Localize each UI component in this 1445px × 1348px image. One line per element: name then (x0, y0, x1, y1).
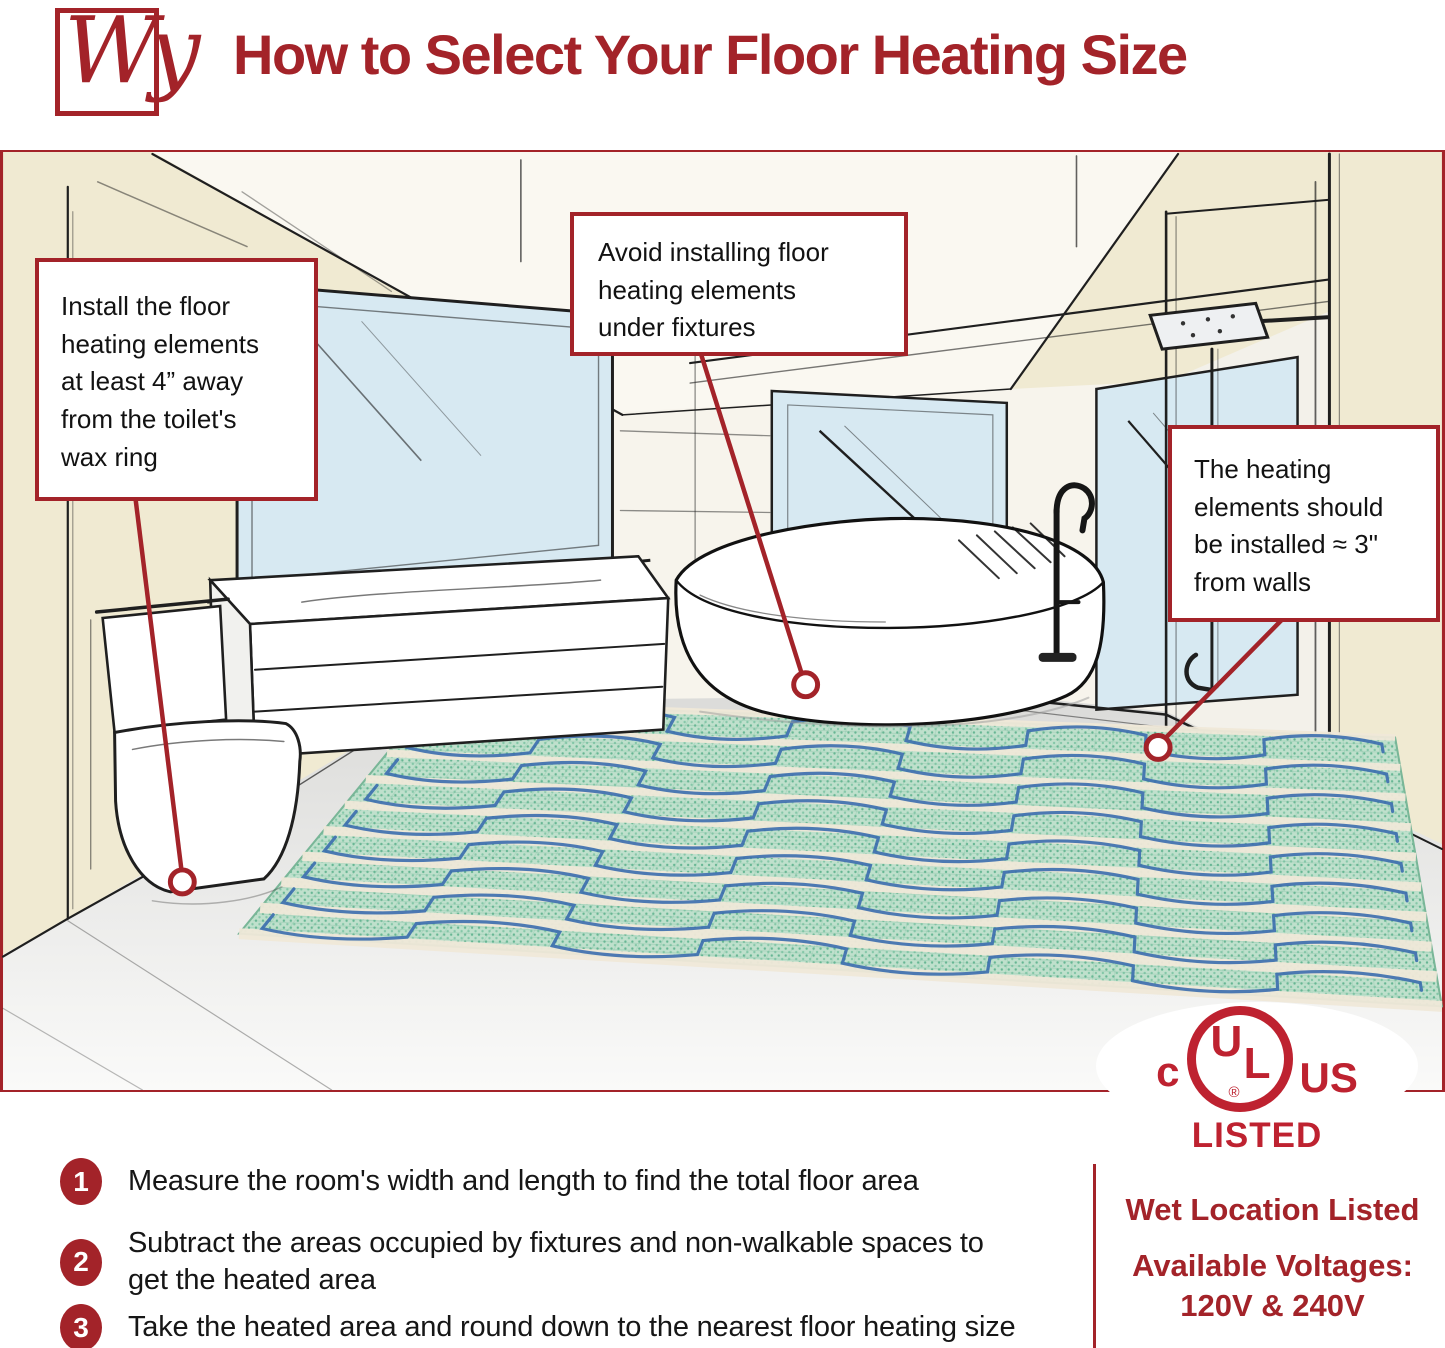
bathtub-sketch (676, 518, 1104, 726)
callout-toilet-clearance: Install the floor heating elements at le… (35, 258, 318, 501)
voltages-label: Available Voltages: (1100, 1248, 1445, 1284)
wall-clearance-marker (1146, 736, 1170, 760)
page-title: How to Select Your Floor Heating Size (233, 22, 1353, 87)
step-row-1: 1 Measure the room's width and length to… (60, 1158, 919, 1205)
callout-wall-clearance: The heating elements should be installed… (1168, 425, 1440, 622)
voltages-value: 120V & 240V (1100, 1288, 1445, 1324)
step-text: Take the heated area and round down to t… (128, 1309, 1015, 1346)
ul-canada-letter: c (1156, 1048, 1179, 1096)
vertical-divider (1093, 1164, 1096, 1348)
wax-ring-marker (170, 870, 194, 894)
infographic-root: Wy How to Select Your Floor Heating Size (0, 0, 1445, 1348)
ratings-panel: Wet Location Listed Available Voltages: … (1100, 1192, 1445, 1324)
tub-base-marker (794, 673, 818, 697)
ul-listed-label: LISTED (1118, 1116, 1396, 1156)
brand-logo: Wy (55, 8, 159, 116)
step-row-3: 3 Take the heated area and round down to… (60, 1304, 1015, 1348)
step-number-badge: 1 (60, 1158, 102, 1205)
ul-us-letters: US (1300, 1054, 1358, 1102)
brand-logo-text: Wy (64, 0, 154, 104)
callout-avoid-fixtures: Avoid installing floor heating elements … (570, 212, 908, 356)
step-text: Subtract the areas occupied by fixtures … (128, 1225, 984, 1299)
step-text: Measure the room's width and length to f… (128, 1163, 919, 1200)
step-row-2: 2 Subtract the areas occupied by fixture… (60, 1225, 984, 1299)
ul-circle-logo: U L ® (1187, 1006, 1293, 1112)
wet-location-label: Wet Location Listed (1100, 1192, 1445, 1228)
ul-certification-mark: c U L ® US LISTED (1118, 1006, 1396, 1156)
step-number-badge: 3 (60, 1304, 102, 1348)
step-number-badge: 2 (60, 1239, 102, 1286)
